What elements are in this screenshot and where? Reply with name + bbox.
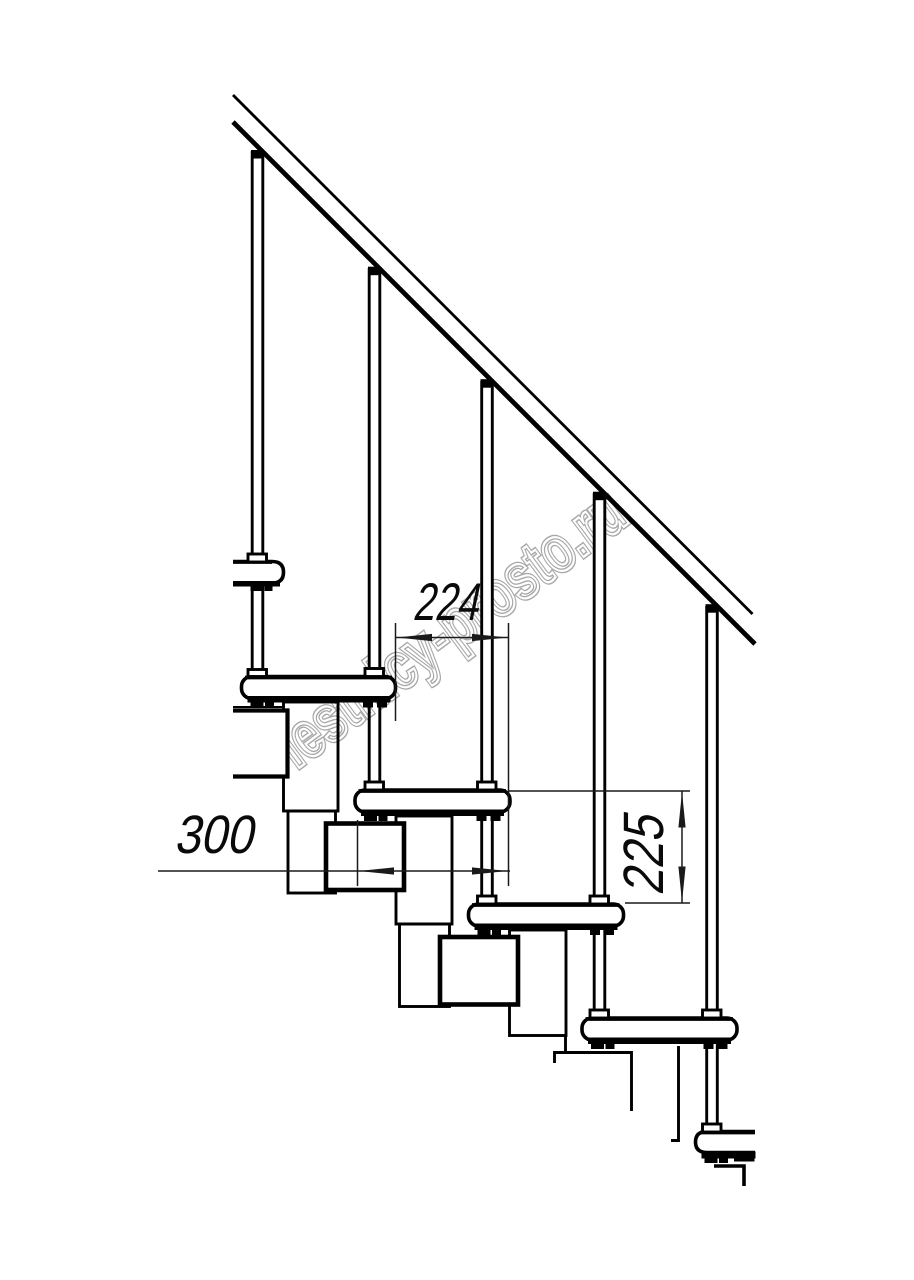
svg-text:224: 224 bbox=[410, 573, 488, 632]
svg-text:300: 300 bbox=[171, 805, 262, 865]
svg-text:225: 225 bbox=[613, 806, 676, 899]
